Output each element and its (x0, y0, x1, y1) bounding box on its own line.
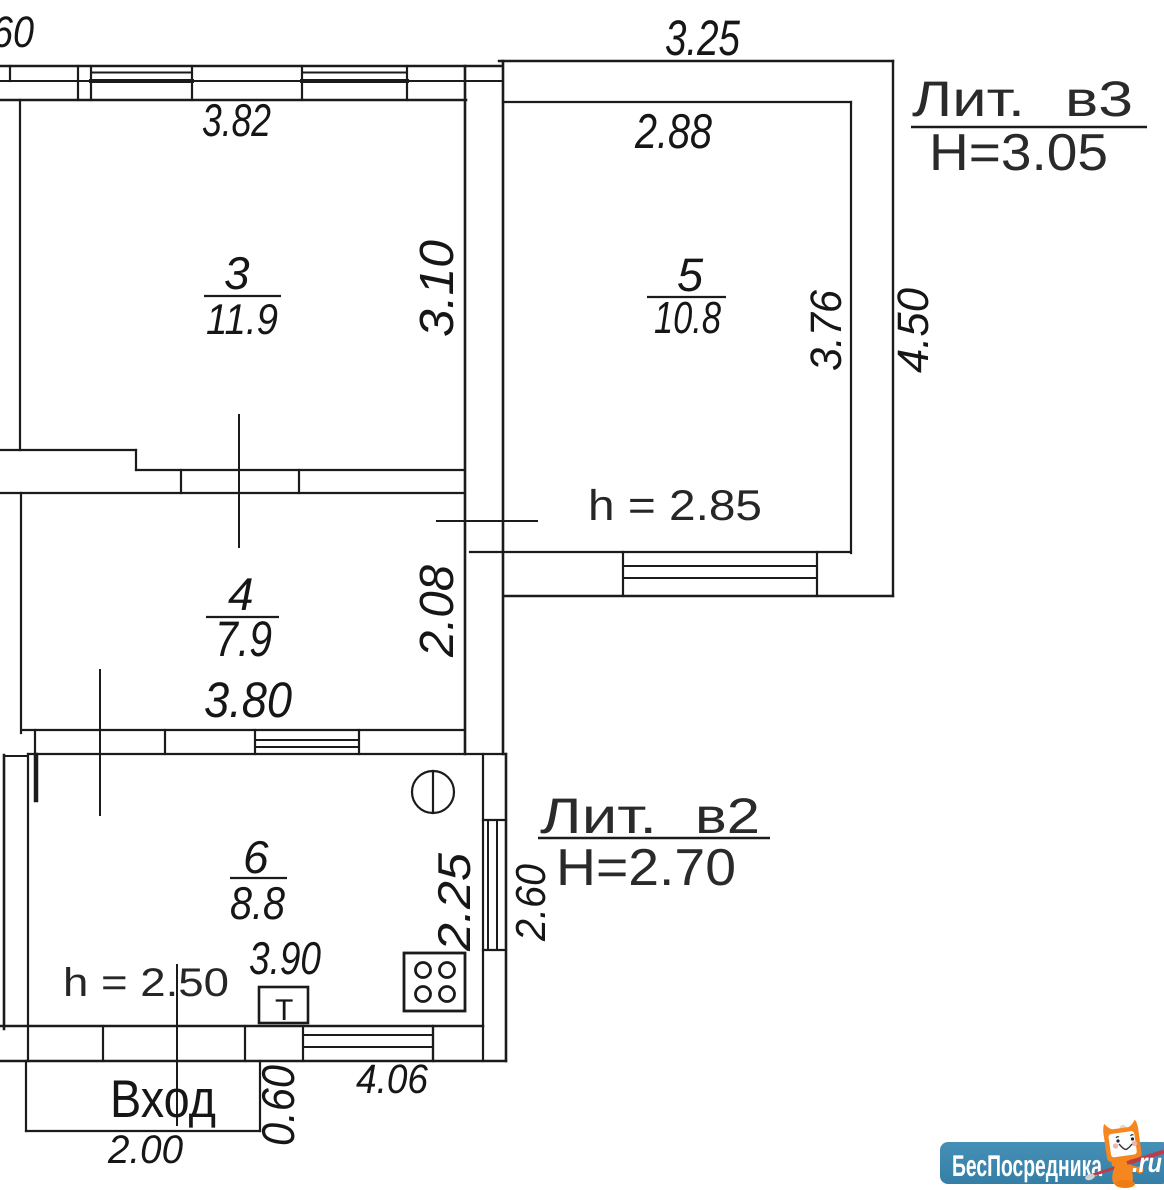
svg-text:3.76: 3.76 (802, 290, 851, 371)
svg-text:10.8: 10.8 (654, 292, 721, 343)
svg-text:h = 2.50: h = 2.50 (63, 961, 229, 1005)
svg-text:3.90: 3.90 (249, 932, 321, 984)
svg-text:3.80: 3.80 (204, 672, 292, 728)
svg-text:11.9: 11.9 (206, 296, 278, 344)
svg-text:Н=3.05: Н=3.05 (929, 124, 1108, 182)
svg-text:Лит.: Лит. (540, 788, 657, 844)
svg-text:2.88: 2.88 (634, 105, 712, 159)
svg-text:4.50: 4.50 (889, 287, 938, 373)
svg-text:2.60: 2.60 (507, 863, 554, 942)
svg-text:3.25: 3.25 (665, 10, 740, 66)
svg-text:Лит.: Лит. (912, 71, 1025, 127)
svg-text:0.60: 0.60 (252, 1065, 304, 1146)
svg-text:60: 60 (0, 8, 34, 57)
svg-text:БесПосредника: БесПосредника (952, 1150, 1102, 1183)
svg-text:2.08: 2.08 (411, 565, 464, 658)
svg-text:в2: в2 (695, 788, 760, 844)
svg-text:Н=2.70: Н=2.70 (556, 839, 736, 897)
svg-text:4.06: 4.06 (356, 1056, 428, 1102)
svg-text:8.8: 8.8 (230, 877, 285, 929)
svg-text:3.10: 3.10 (411, 240, 464, 337)
svg-text:6: 6 (243, 831, 269, 883)
svg-text:2.00: 2.00 (107, 1128, 183, 1172)
svg-text:3: 3 (224, 247, 250, 299)
svg-text:7.9: 7.9 (215, 611, 272, 667)
svg-text:Вход: Вход (110, 1070, 216, 1129)
svg-text:h = 2.85: h = 2.85 (588, 482, 762, 530)
svg-text:Т: Т (275, 994, 293, 1027)
svg-text:.ru: .ru (1132, 1148, 1162, 1178)
svg-text:2.25: 2.25 (428, 853, 480, 953)
svg-text:в3: в3 (1065, 71, 1133, 127)
svg-text:3.82: 3.82 (202, 94, 271, 146)
